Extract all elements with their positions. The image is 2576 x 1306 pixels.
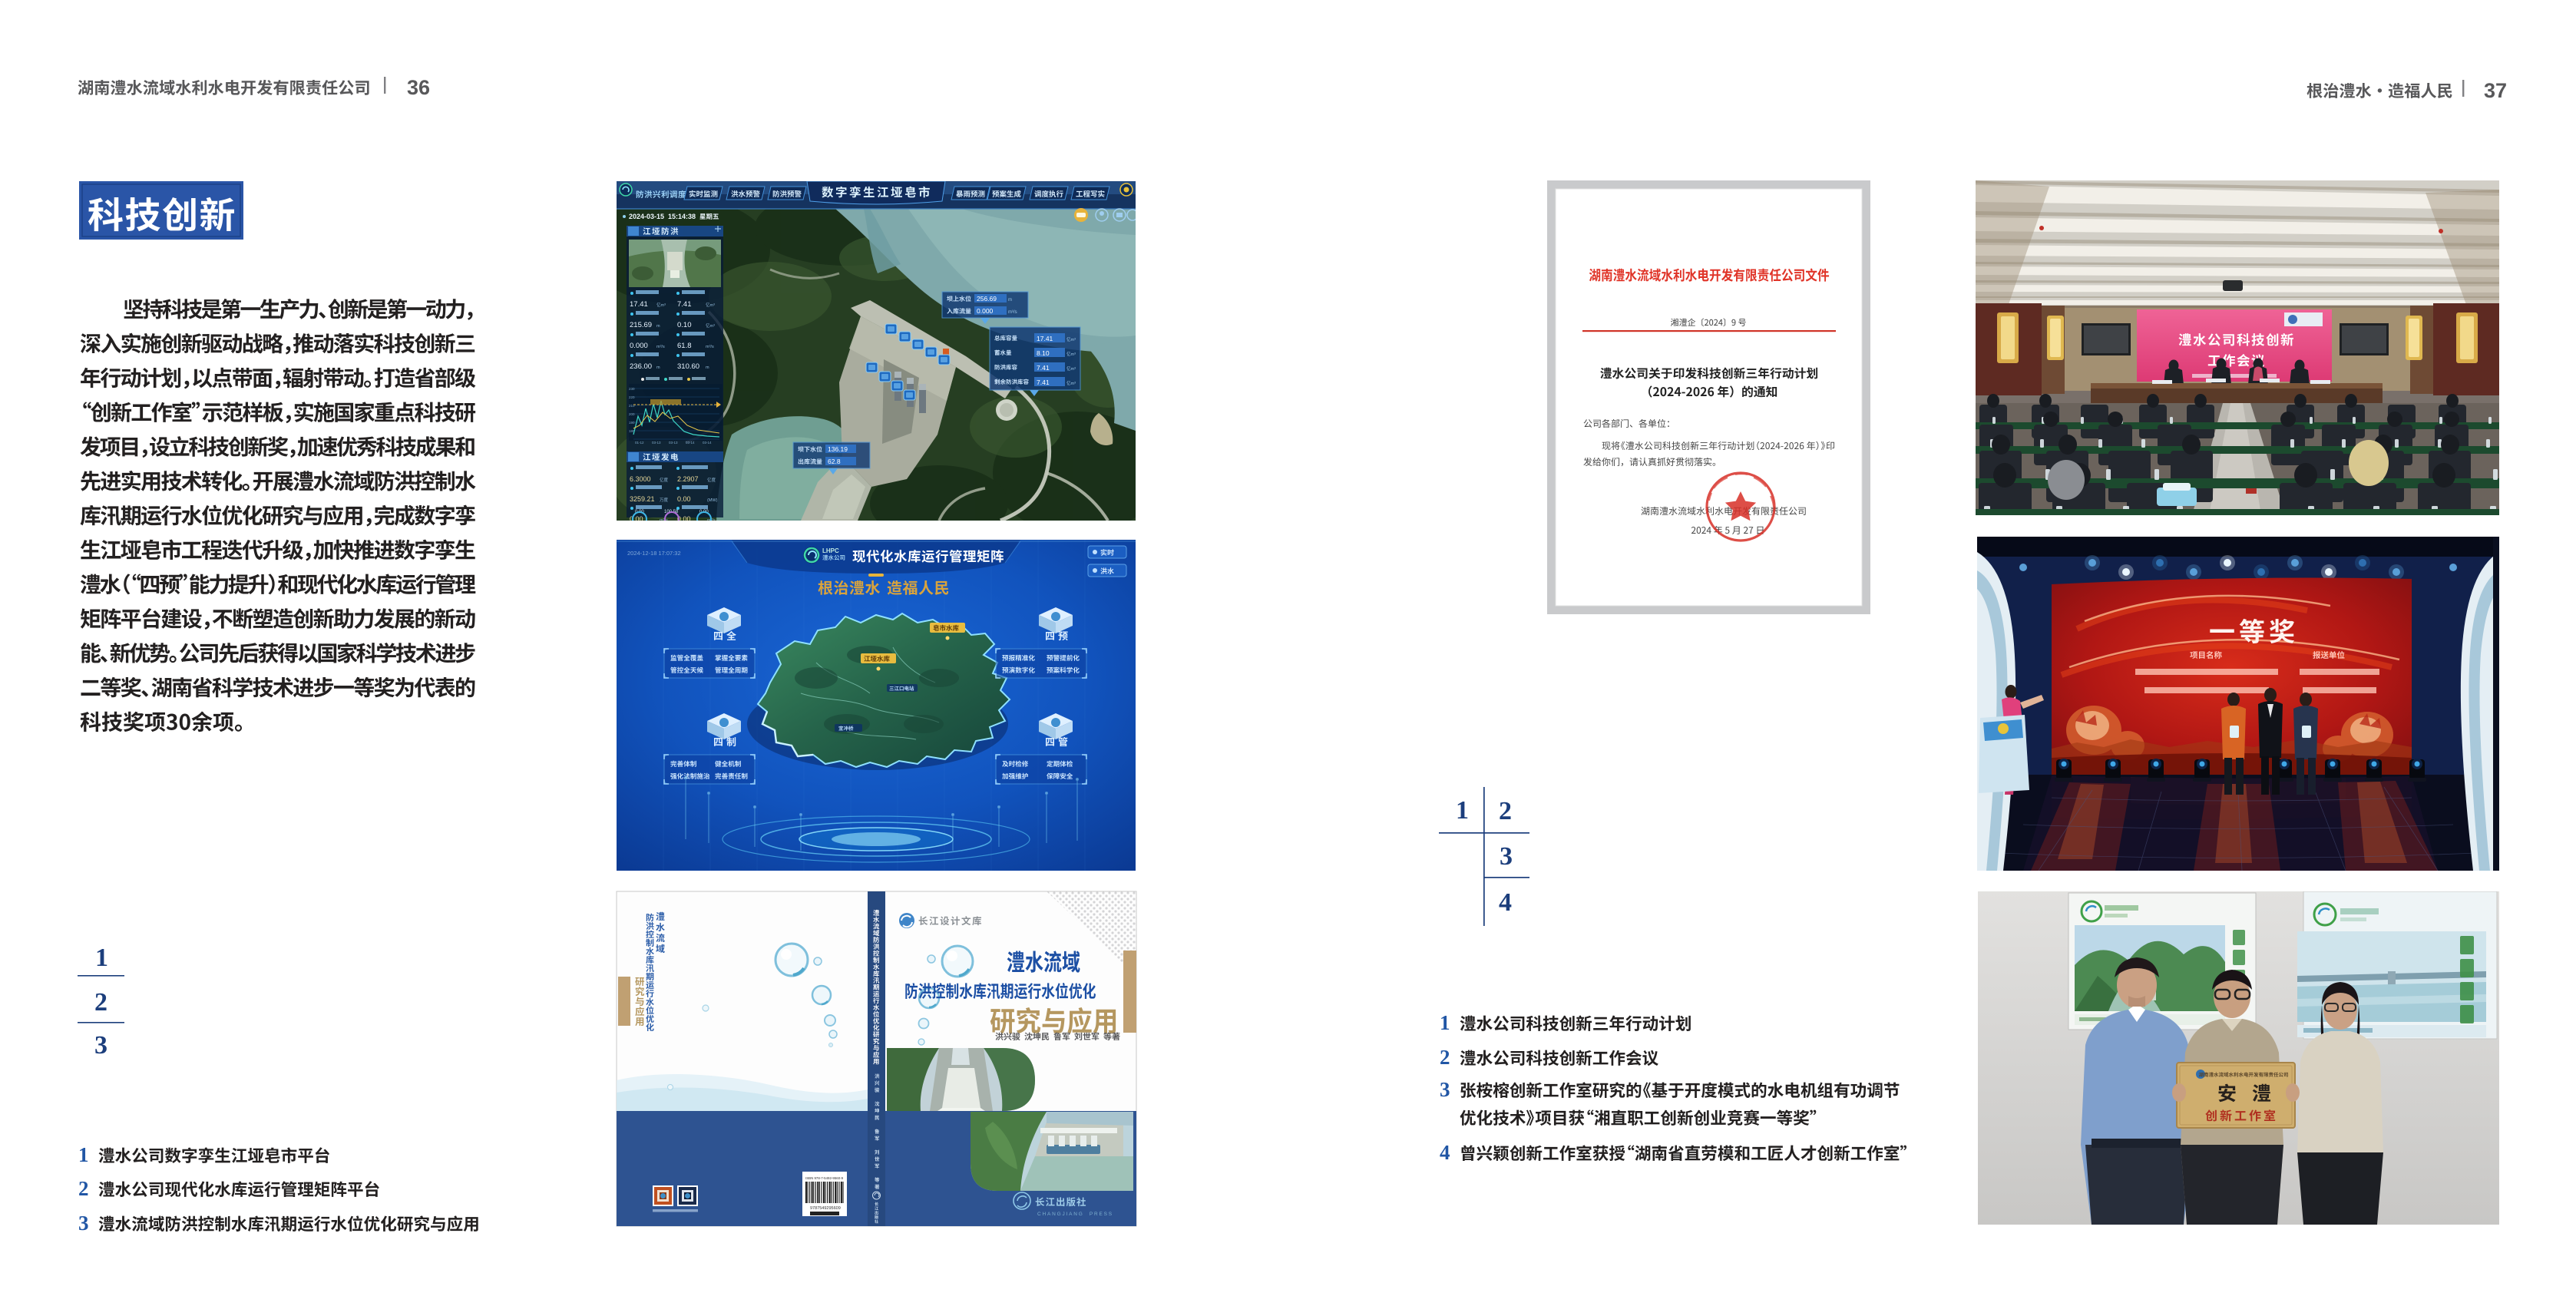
- svg-text:01-12: 01-12: [635, 441, 644, 445]
- svg-text:1: 1: [78, 1143, 89, 1166]
- svg-text:03-13: 03-13: [669, 441, 678, 445]
- svg-text:(MW): (MW): [707, 498, 718, 503]
- svg-text:m: m: [656, 365, 660, 370]
- svg-text:0.000: 0.000: [630, 342, 648, 350]
- svg-text:3259.21: 3259.21: [630, 495, 655, 503]
- svg-text:03-14: 03-14: [686, 441, 695, 445]
- svg-text:亿m³: 亿m³: [656, 302, 666, 308]
- svg-text:亿m³: 亿m³: [1066, 351, 1076, 357]
- svg-text:万度: 万度: [660, 497, 669, 503]
- svg-text:136.19: 136.19: [828, 445, 848, 453]
- svg-text:m³/s: m³/s: [656, 345, 665, 349]
- svg-text:2024-12-18 17:07:32: 2024-12-18 17:07:32: [627, 550, 681, 557]
- svg-text:2: 2: [1499, 797, 1512, 825]
- svg-text:2: 2: [78, 1177, 89, 1200]
- svg-text:4: 4: [1499, 888, 1512, 917]
- svg-text:230: 230: [629, 387, 635, 391]
- svg-text:1: 1: [95, 944, 108, 972]
- svg-text:2.2907: 2.2907: [677, 475, 699, 483]
- svg-text:8.10: 8.10: [1037, 349, 1050, 357]
- svg-text:1: 1: [1456, 796, 1469, 825]
- svg-text:2: 2: [94, 988, 107, 1017]
- svg-text:3: 3: [78, 1212, 89, 1235]
- svg-text:236.00: 236.00: [630, 362, 652, 371]
- svg-text:3: 3: [1440, 1078, 1450, 1101]
- svg-text:215.69: 215.69: [630, 321, 652, 329]
- svg-text:3: 3: [1500, 842, 1513, 871]
- svg-text:6.3000: 6.3000: [630, 475, 651, 483]
- svg-text:256.69: 256.69: [977, 295, 997, 303]
- svg-text:62.8: 62.8: [828, 458, 841, 465]
- svg-text:17.41: 17.41: [630, 300, 648, 309]
- svg-text:7.41: 7.41: [1037, 364, 1050, 372]
- svg-text:7.41: 7.41: [677, 300, 692, 309]
- svg-text:m³/s: m³/s: [706, 345, 714, 349]
- svg-text:2024-03-15 15:14:38: 2024-03-15 15:14:38: [629, 213, 696, 220]
- svg-text:0.10: 0.10: [677, 321, 692, 329]
- svg-text:0.00: 0.00: [677, 495, 691, 503]
- svg-text:亿度: 亿度: [707, 477, 716, 483]
- svg-text:36: 36: [407, 76, 430, 99]
- svg-text:亿m³: 亿m³: [706, 322, 715, 329]
- svg-text:61.8: 61.8: [677, 342, 692, 350]
- svg-text:亿m³: 亿m³: [1066, 336, 1076, 342]
- svg-text:03-13: 03-13: [652, 441, 661, 445]
- svg-text:7.41: 7.41: [1037, 379, 1050, 386]
- svg-text:190: 190: [629, 421, 635, 425]
- svg-text:m³/s: m³/s: [1008, 310, 1017, 315]
- svg-text:9787549295609: 9787549295609: [810, 1206, 841, 1211]
- svg-text:17.41: 17.41: [1037, 335, 1053, 342]
- svg-text:310.60: 310.60: [677, 362, 699, 371]
- svg-text:亿m³: 亿m³: [706, 302, 715, 308]
- svg-text:220: 220: [629, 395, 635, 399]
- svg-text:LHPC: LHPC: [822, 547, 839, 554]
- svg-text:ISBN 978-7-5492-9560-9: ISBN 978-7-5492-9560-9: [805, 1176, 844, 1180]
- svg-text:37: 37: [2484, 79, 2507, 102]
- svg-text:03-14: 03-14: [703, 441, 712, 445]
- svg-text:m: m: [706, 365, 709, 370]
- svg-text:200: 200: [629, 412, 635, 416]
- svg-text:亿度: 亿度: [660, 477, 669, 483]
- svg-text:m: m: [1008, 298, 1012, 303]
- svg-text:1: 1: [1440, 1011, 1450, 1034]
- svg-text:4: 4: [1440, 1141, 1450, 1164]
- svg-text:2: 2: [1440, 1046, 1450, 1069]
- svg-text:亿m³: 亿m³: [1066, 365, 1076, 372]
- svg-text:0.000: 0.000: [977, 307, 994, 315]
- svg-text:3: 3: [94, 1031, 107, 1060]
- svg-text:亿m³: 亿m³: [1066, 380, 1076, 386]
- svg-text:CHANGJIANG PRESS: CHANGJIANG PRESS: [1037, 1212, 1113, 1217]
- svg-text:m: m: [656, 324, 660, 329]
